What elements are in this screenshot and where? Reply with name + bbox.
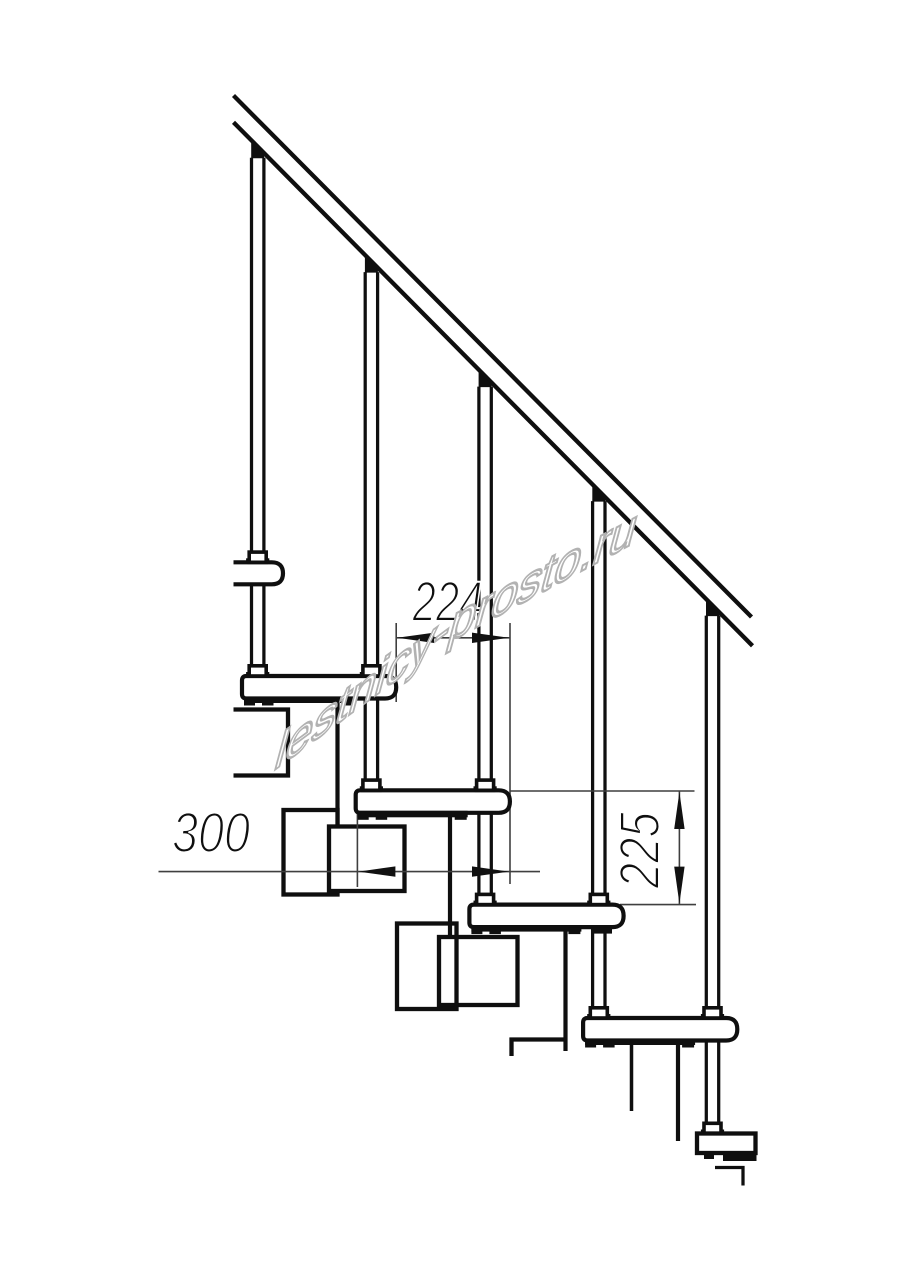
- svg-text:225: 225: [608, 812, 672, 889]
- svg-text:300: 300: [172, 801, 250, 865]
